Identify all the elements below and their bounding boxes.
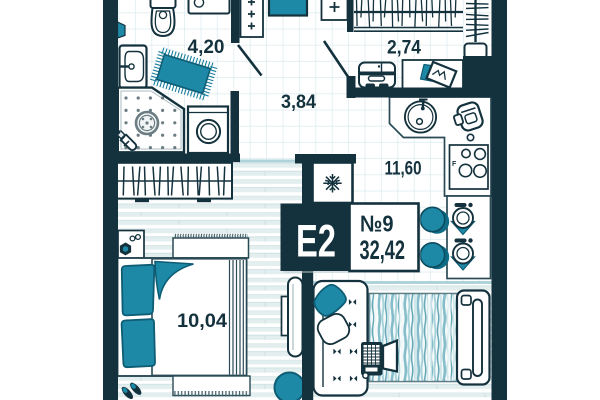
svg-text:3,84: 3,84 (281, 92, 316, 113)
svg-text:10,04: 10,04 (177, 310, 227, 332)
svg-text:2,74: 2,74 (387, 38, 421, 59)
svg-text:№9: №9 (360, 211, 394, 237)
svg-text:4,20: 4,20 (188, 37, 225, 58)
svg-text:E2: E2 (296, 216, 336, 267)
svg-text:32,42: 32,42 (360, 235, 406, 265)
svg-text:11,60: 11,60 (385, 159, 422, 180)
svg-text:F: F (452, 161, 457, 168)
